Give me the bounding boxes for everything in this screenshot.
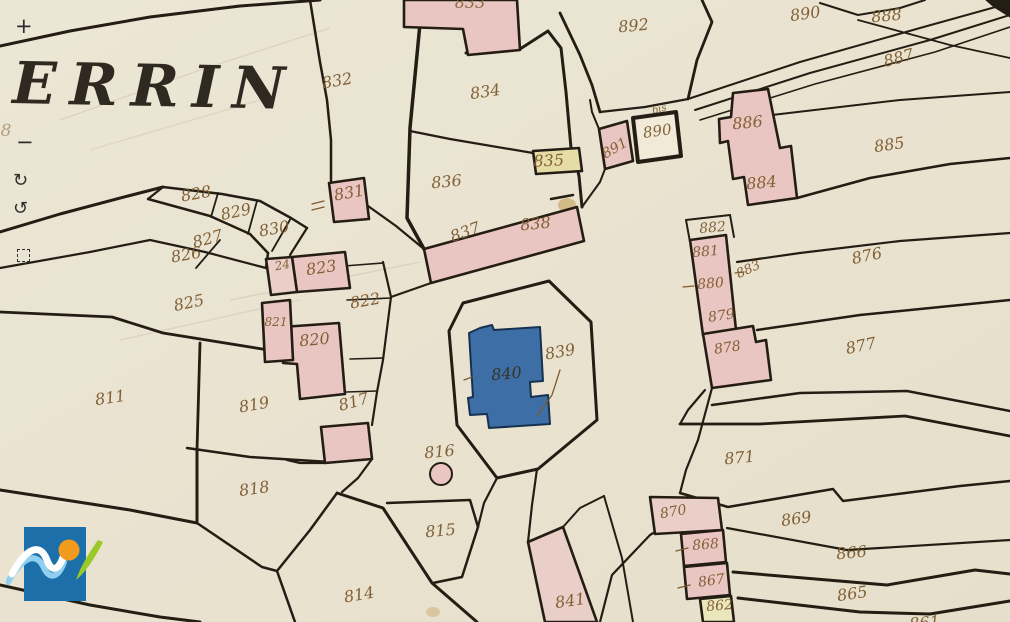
parcel-label-862: 862 [706, 597, 734, 615]
building [321, 423, 372, 463]
zoom-out-button[interactable]: − [16, 132, 34, 153]
parcel-label-833: 833 [455, 0, 486, 12]
map-canvas[interactable]: ERRIN833832834892890888887bis89089188688… [0, 0, 1010, 622]
parcel-label-24: 24 [273, 257, 291, 274]
zoom-in-button[interactable]: + [15, 16, 33, 37]
parcel-label-868: 868 [692, 536, 720, 554]
parcel-label-880: 880 [697, 275, 725, 293]
logo-sun [59, 540, 80, 561]
parcel-label-835: 835 [533, 150, 564, 171]
rotate-left-button[interactable]: ↺ [13, 200, 28, 218]
parcel-boundary [350, 358, 383, 359]
parcel-label-8: 8 [1, 121, 12, 141]
parcel-label-892: 892 [617, 15, 649, 37]
parcel-label-840: 840 [490, 363, 522, 385]
town-name-label: ERRIN [10, 49, 299, 123]
parcel-label-882: 882 [699, 219, 727, 237]
parcel-label-881: 881 [692, 243, 720, 261]
parcel-label-838: 838 [519, 213, 551, 235]
well-816 [430, 463, 452, 485]
ink-stain [426, 607, 440, 617]
rotate-right-button[interactable]: ↻ [13, 172, 28, 190]
parcel-label-884: 884 [745, 172, 777, 194]
box-zoom-button[interactable] [17, 249, 30, 262]
parcel-label-821: 821 [265, 315, 288, 329]
morbihan-logo[interactable]: Morbihan [6, 520, 116, 615]
building [262, 300, 293, 362]
map-viewer: ERRIN833832834892890888887bis89089188688… [0, 0, 1010, 622]
parcel-label-871: 871 [723, 447, 755, 469]
parcel-label-815: 815 [424, 520, 456, 542]
parcel-label-816: 816 [423, 441, 455, 463]
parcel-label-888: 888 [870, 5, 902, 27]
parcel-label-886: 886 [731, 112, 763, 134]
parcel-label-861: 861 [908, 612, 940, 622]
morbihan-logo-graphic [6, 520, 116, 615]
parcel-label-836: 836 [430, 171, 462, 193]
logo-square [24, 527, 86, 601]
parcel-label-866: 866 [835, 542, 867, 564]
parcel-label-820: 820 [298, 329, 330, 351]
